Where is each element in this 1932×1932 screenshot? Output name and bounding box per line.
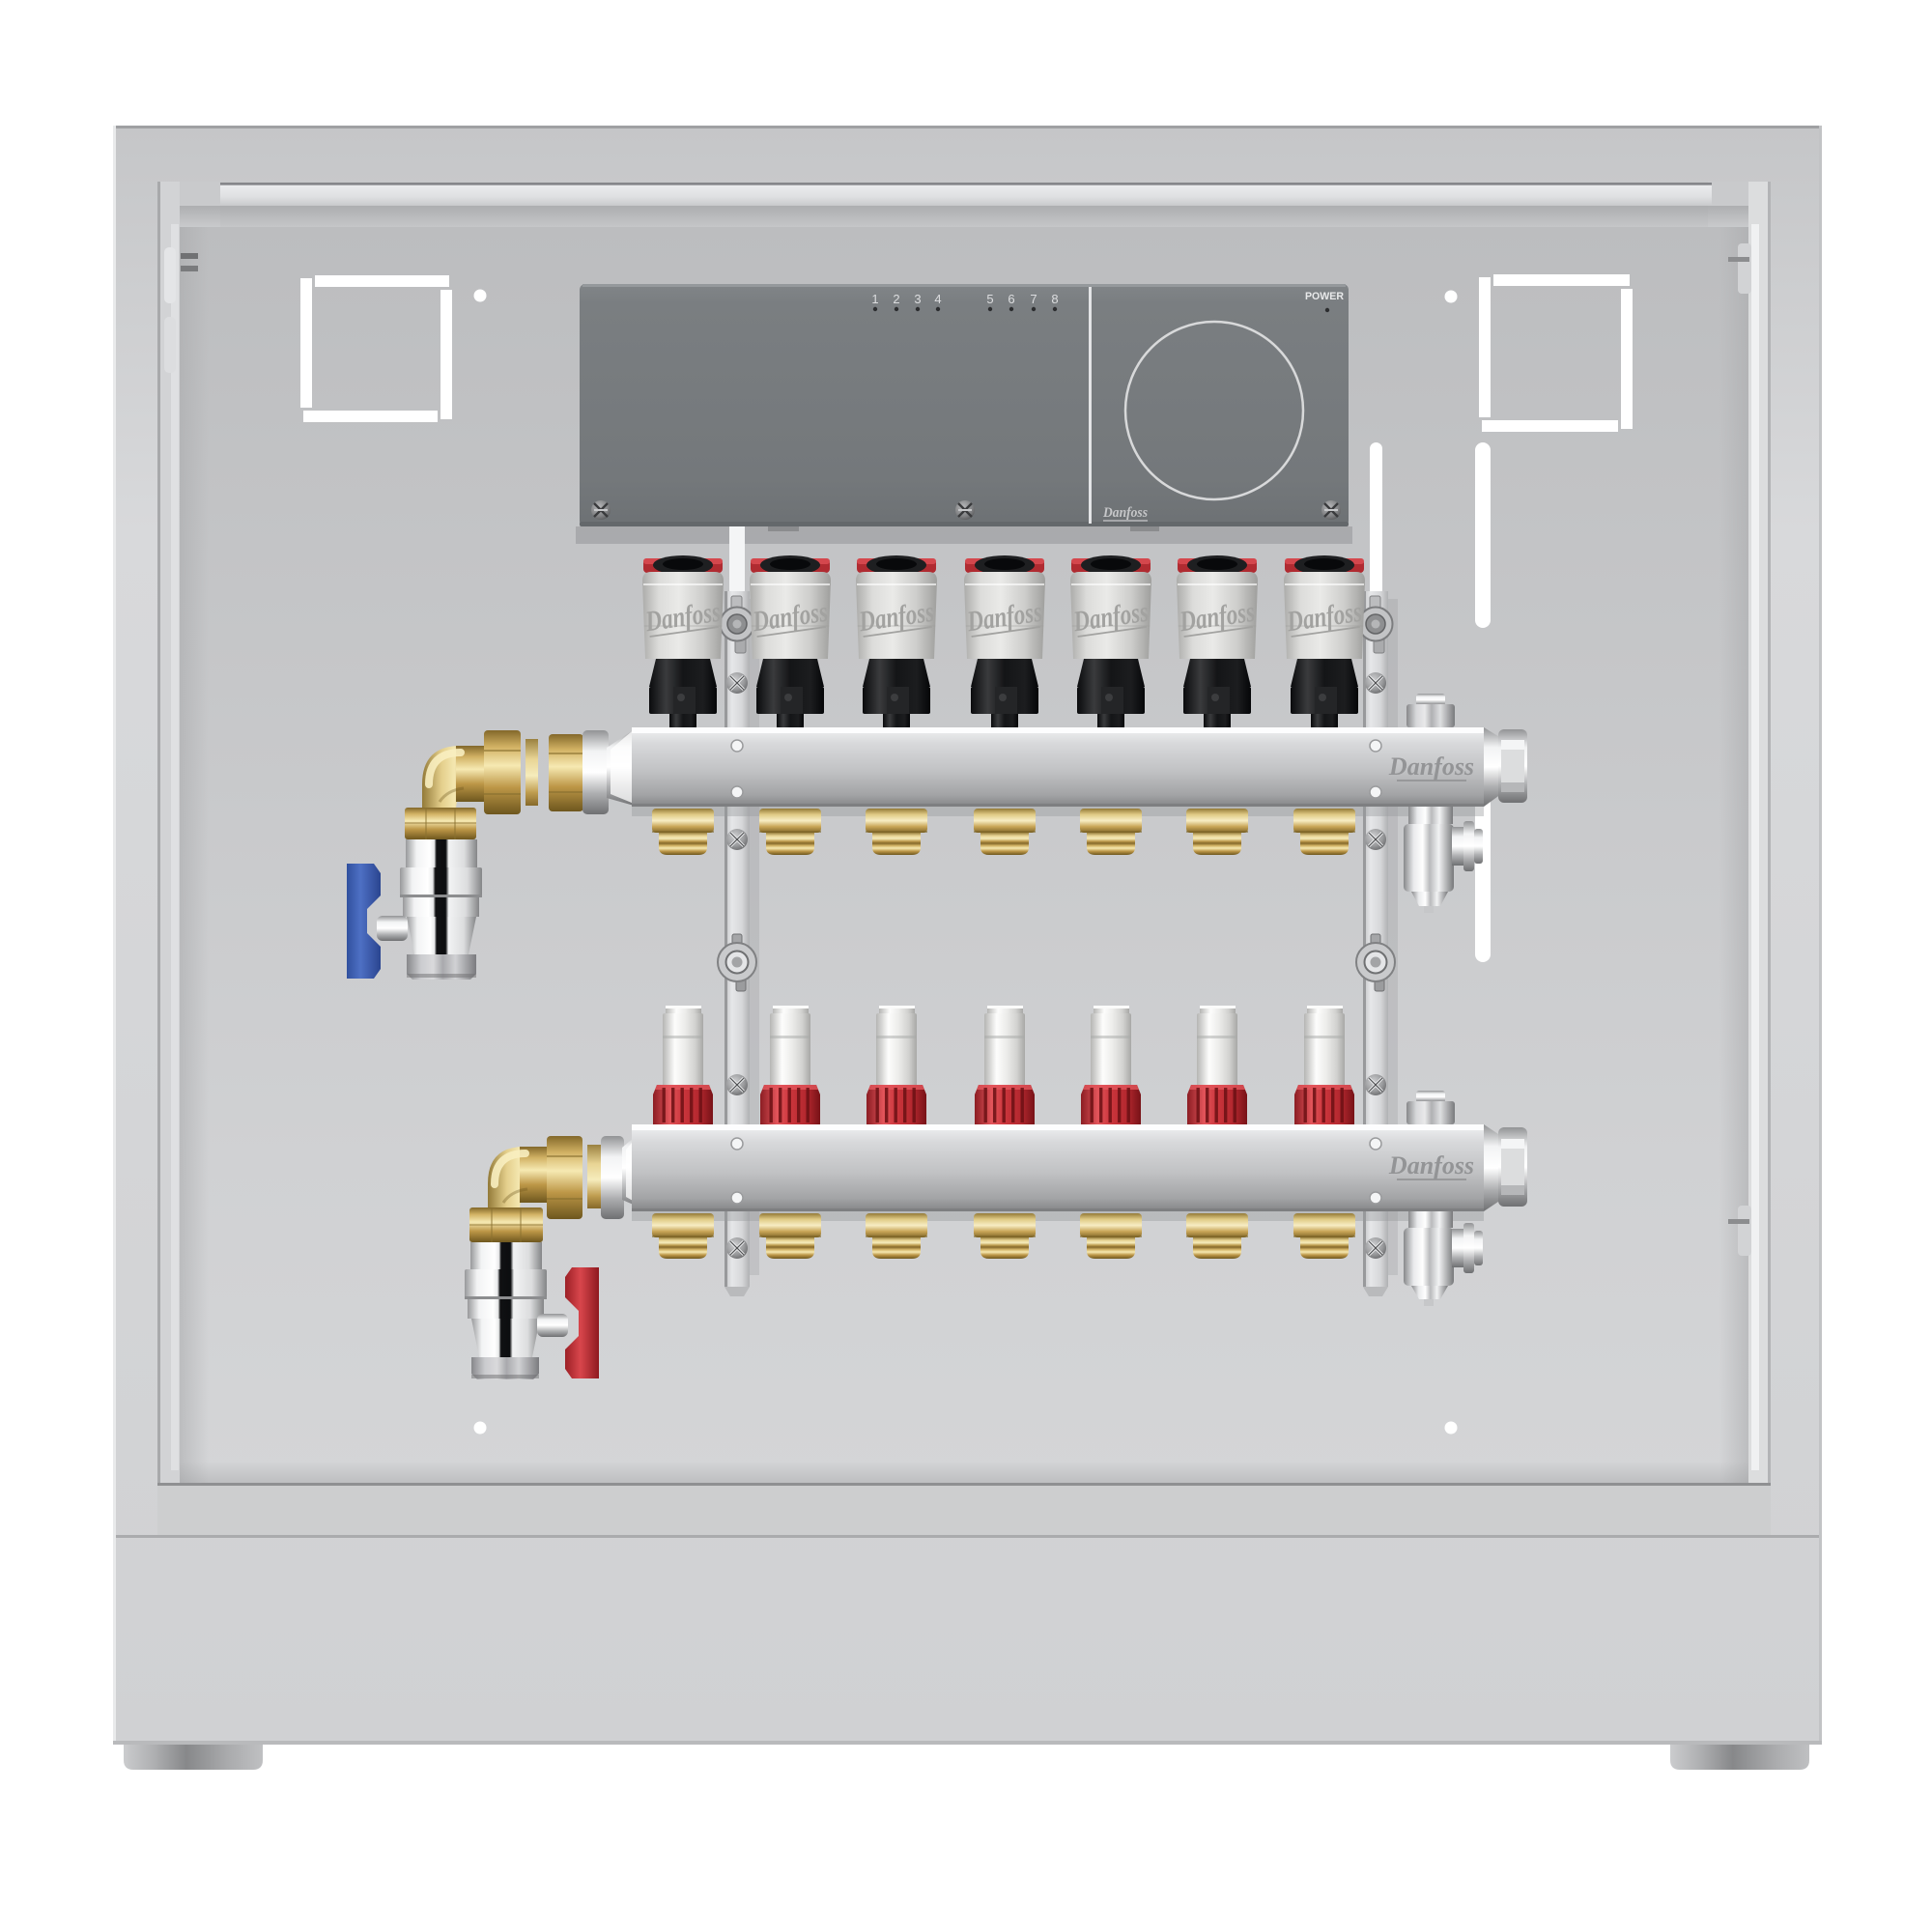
svg-text:4: 4: [934, 292, 941, 306]
svg-text:7: 7: [1030, 292, 1037, 306]
svg-text:Danfoss: Danfoss: [1388, 753, 1474, 781]
svg-text:5: 5: [986, 292, 993, 306]
svg-text:3: 3: [914, 292, 921, 306]
svg-text:POWER: POWER: [1305, 291, 1344, 302]
svg-text:1: 1: [871, 292, 878, 306]
svg-text:8: 8: [1051, 292, 1058, 306]
svg-text:Danfoss: Danfoss: [1388, 1151, 1474, 1179]
svg-text:6: 6: [1008, 292, 1014, 306]
svg-text:2: 2: [893, 292, 899, 306]
svg-text:Danfoss: Danfoss: [1102, 505, 1148, 521]
